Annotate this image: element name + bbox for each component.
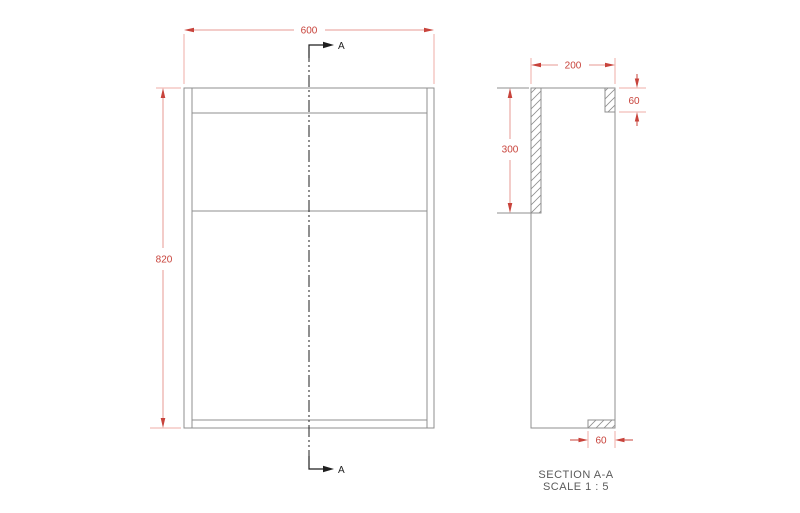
dim-arrow-up-icon: [635, 112, 639, 122]
section-arrow-bottom-icon: [323, 466, 334, 472]
dim-arrow-down-icon: [508, 203, 513, 213]
section-cut-line: A A: [309, 41, 345, 476]
dimension-60-top: 60: [619, 74, 646, 126]
dim-60-bottom-label: 60: [595, 436, 607, 447]
dim-200-label: 200: [565, 61, 582, 72]
top-rail-hatch: [605, 88, 615, 112]
dim-arrow-right-icon: [605, 63, 615, 68]
drawing-canvas: A A 600 820 200: [0, 0, 800, 513]
section-letter-bottom: A: [338, 465, 345, 476]
section-flag-bottom: [309, 456, 323, 469]
engineering-drawing-sheet: A A 600 820 200: [0, 0, 800, 513]
dimension-820: 820: [150, 88, 181, 428]
section-caption-title: SECTION A-A: [538, 469, 613, 481]
dim-arrow-up-icon: [161, 88, 166, 98]
section-letter-top: A: [338, 41, 345, 52]
bottom-rail-hatch: [588, 420, 615, 428]
dim-arrow-up-icon: [508, 88, 513, 98]
dim-300-label: 300: [502, 145, 519, 156]
dim-820-label: 820: [156, 255, 173, 266]
dim-arrow-right-icon: [424, 28, 434, 33]
dim-arrow-left-icon: [184, 28, 194, 33]
dimension-60-bottom: 60: [570, 431, 633, 448]
dim-arrow-right-icon: [579, 438, 589, 442]
section-caption: SECTION A-A SCALE 1 : 5: [538, 469, 613, 493]
dim-arrow-down-icon: [635, 79, 639, 89]
side-panel-hatch: [531, 88, 541, 213]
section-view: [531, 88, 615, 428]
section-outline: [531, 88, 615, 428]
dim-arrow-left-icon: [615, 438, 625, 442]
dim-arrow-left-icon: [531, 63, 541, 68]
dim-arrow-down-icon: [161, 418, 166, 428]
section-caption-scale: SCALE 1 : 5: [543, 481, 609, 493]
dim-600-label: 600: [301, 26, 318, 37]
dim-60-top-label: 60: [628, 96, 640, 107]
section-flag-top: [309, 45, 323, 58]
section-arrow-top-icon: [323, 42, 334, 48]
dimension-200: 200: [531, 58, 615, 84]
